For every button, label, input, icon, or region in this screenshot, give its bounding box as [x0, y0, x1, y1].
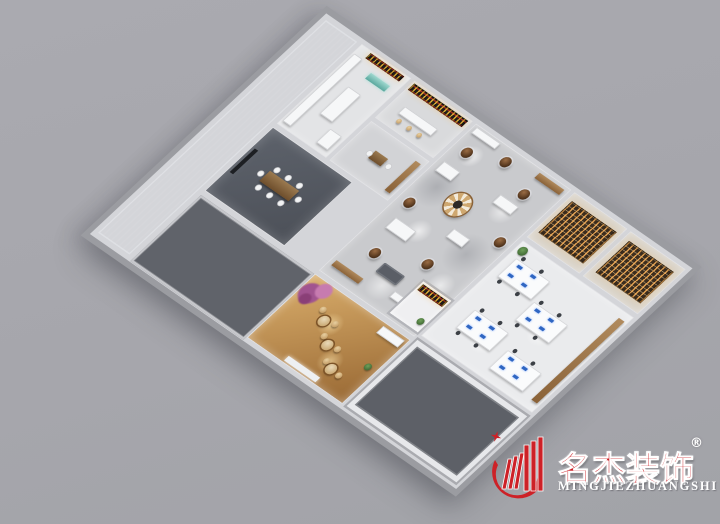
lit-counter	[365, 73, 390, 92]
monitor	[466, 324, 473, 329]
monitor	[530, 274, 537, 279]
display-table	[435, 161, 460, 181]
desk-cluster	[515, 302, 568, 343]
monitor	[534, 308, 541, 313]
monitor	[508, 357, 515, 362]
office-chair	[514, 291, 521, 297]
monitor	[538, 326, 545, 331]
bar-counter	[398, 107, 438, 136]
monitor	[475, 316, 482, 321]
monitor	[512, 374, 519, 379]
monitor	[525, 317, 532, 322]
display-table	[385, 217, 416, 241]
display-pedestal	[497, 155, 514, 169]
sofa	[375, 263, 405, 286]
stool	[330, 320, 340, 329]
monitor	[547, 318, 554, 323]
chair	[264, 191, 274, 200]
chair	[293, 195, 303, 204]
brand-name-latin: MINGJIEZHUANGSHI	[558, 479, 718, 494]
display-table	[492, 195, 518, 215]
circular-sample-display	[438, 188, 477, 220]
office-chair	[520, 256, 527, 262]
monitor	[521, 282, 528, 287]
office-chair	[479, 308, 486, 314]
plant	[362, 362, 374, 372]
monitor	[488, 325, 495, 330]
office-chair	[529, 361, 536, 367]
display-table	[446, 229, 470, 248]
monitor	[516, 265, 523, 270]
bar-stool	[415, 132, 423, 139]
plant	[515, 245, 530, 257]
display-pedestal	[401, 196, 418, 210]
chair	[253, 183, 263, 192]
office-chair	[538, 269, 545, 275]
brand-watermark: 名杰装饰 MINGJIEZHUANGSHI ®	[486, 420, 716, 520]
display-pedestal	[458, 146, 475, 160]
stool	[318, 306, 328, 315]
monitor	[479, 334, 486, 339]
office-chair	[532, 335, 539, 341]
office-chair	[496, 279, 503, 285]
render-canvas: 名杰装饰 MINGJIEZHUANGSHI ®	[0, 0, 720, 524]
display-pedestal	[366, 246, 383, 260]
display-pedestal	[491, 235, 508, 249]
building-plan	[98, 20, 684, 482]
desk-cluster	[497, 258, 550, 299]
bar-stool	[395, 118, 403, 125]
display-pedestal	[419, 257, 436, 271]
chair	[383, 162, 393, 171]
brand-logo-icon	[488, 426, 548, 512]
monitor	[499, 365, 506, 370]
display-pedestal	[515, 187, 532, 201]
monitor	[521, 366, 528, 371]
office-chair	[514, 322, 521, 328]
chair	[276, 199, 286, 208]
office-chair	[455, 330, 462, 336]
office-chair	[556, 312, 563, 318]
desk-cluster	[456, 310, 509, 351]
round-table	[315, 314, 332, 328]
office-chair	[497, 320, 504, 326]
registered-trademark-symbol: ®	[690, 436, 703, 451]
stool	[332, 345, 342, 354]
office-chair	[538, 300, 545, 306]
office-chair	[473, 343, 480, 349]
monitor	[507, 273, 514, 278]
plant	[415, 317, 427, 327]
office-chair	[511, 348, 518, 354]
desk-cluster	[489, 350, 542, 391]
bar-stool	[405, 125, 413, 132]
display-shelf	[331, 260, 363, 284]
stool	[333, 371, 343, 380]
